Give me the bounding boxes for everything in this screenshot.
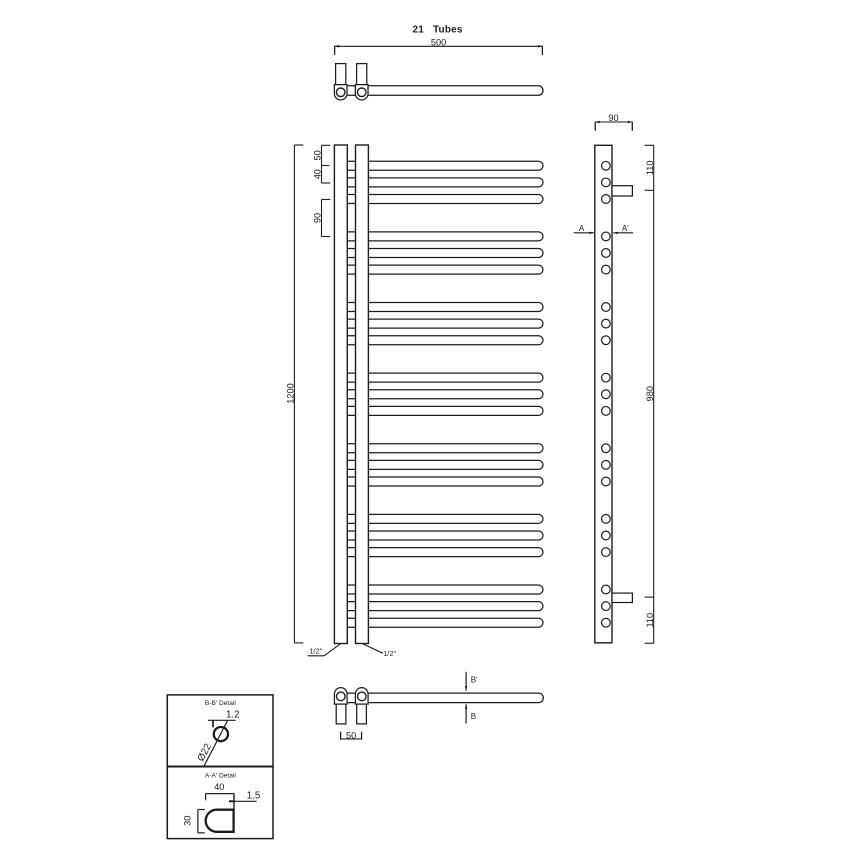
svg-text:1200: 1200	[286, 383, 296, 403]
svg-text:1.2: 1.2	[226, 709, 240, 720]
svg-text:A': A'	[622, 224, 629, 233]
svg-text:A: A	[579, 224, 585, 233]
svg-text:21 Tubes: 21 Tubes	[413, 24, 463, 35]
svg-text:110: 110	[645, 613, 655, 628]
svg-text:50: 50	[346, 730, 356, 740]
svg-text:40: 40	[313, 169, 323, 179]
svg-text:980: 980	[645, 386, 655, 401]
svg-text:90: 90	[608, 113, 618, 123]
svg-text:90: 90	[313, 213, 323, 223]
svg-text:1/2": 1/2"	[383, 649, 396, 658]
svg-text:B': B'	[471, 676, 478, 685]
svg-text:50: 50	[313, 150, 323, 160]
svg-text:A-A' Detail: A-A' Detail	[205, 772, 236, 779]
svg-text:110: 110	[645, 160, 655, 175]
svg-text:B: B	[471, 712, 476, 721]
svg-text:500: 500	[431, 37, 446, 47]
svg-text:40: 40	[214, 781, 224, 792]
svg-text:30: 30	[182, 815, 193, 825]
svg-text:1/2": 1/2"	[309, 647, 322, 656]
svg-text:1.5: 1.5	[247, 791, 261, 802]
svg-text:B-B' Detail: B-B' Detail	[205, 700, 236, 707]
